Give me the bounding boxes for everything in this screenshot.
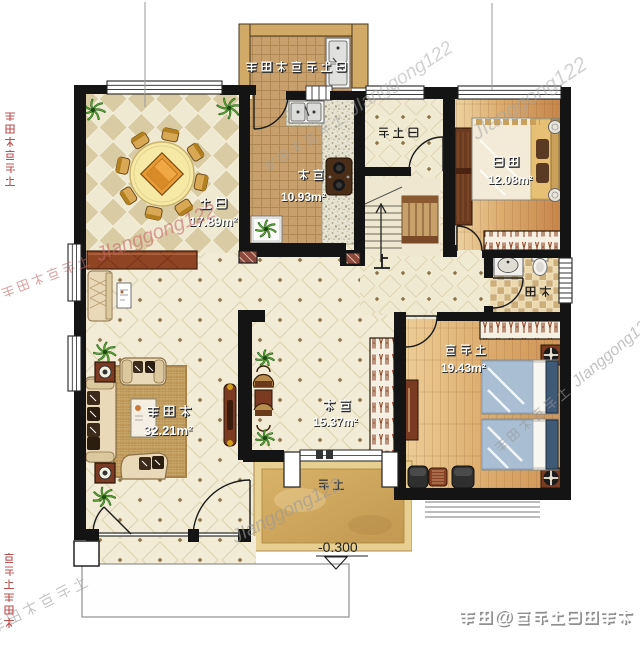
svg-text:-0.300: -0.300 xyxy=(318,539,358,555)
svg-text:10.93m²: 10.93m² xyxy=(281,190,326,204)
svg-text:19.43m²: 19.43m² xyxy=(441,361,486,375)
svg-text:@: @ xyxy=(494,607,513,628)
svg-text:12.08m²: 12.08m² xyxy=(488,173,533,187)
svg-text:15.37m²: 15.37m² xyxy=(313,415,358,429)
svg-text:32.21m²: 32.21m² xyxy=(144,423,193,438)
